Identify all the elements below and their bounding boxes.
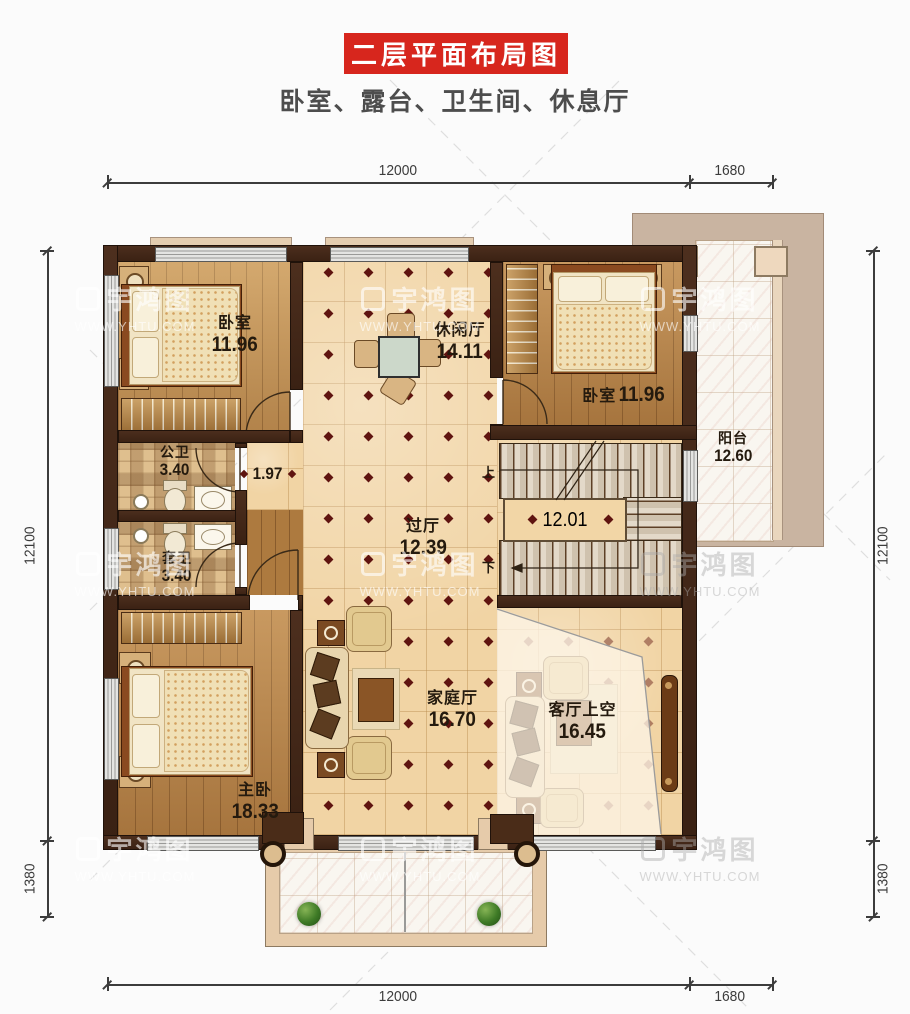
stair-down-label: 下 bbox=[482, 557, 495, 576]
pillow bbox=[605, 276, 649, 302]
blanket bbox=[556, 304, 652, 370]
dim-bottom-1680: 1680 bbox=[690, 988, 770, 1005]
sliding-door bbox=[338, 836, 474, 851]
bathroom-sink bbox=[194, 524, 232, 550]
dim-top-12000: 12000 bbox=[358, 162, 438, 179]
wall-bedroom2-bottom bbox=[490, 425, 697, 440]
balcony-floor bbox=[695, 240, 774, 542]
wall-lamp bbox=[133, 528, 149, 544]
stair-flight-upper bbox=[499, 443, 682, 499]
sofa-cushion bbox=[313, 680, 341, 708]
wardrobe bbox=[121, 612, 242, 644]
label-bedroom-top-left: 卧室 11.96 bbox=[190, 315, 280, 358]
wall-bedroom1-bottom bbox=[118, 430, 290, 443]
wall-master-top-b bbox=[298, 595, 303, 610]
balcony-pilaster-right bbox=[754, 246, 788, 277]
coffee-table bbox=[358, 678, 394, 722]
dim-bottom-12000: 12000 bbox=[358, 988, 438, 1005]
page-subtitle: 卧室、露台、卫生间、休息厅 bbox=[0, 82, 910, 118]
stairwell-area: 12.01 bbox=[542, 509, 587, 532]
label-living-void: 客厅上空 16.45 bbox=[525, 702, 640, 745]
dim-line-bottom bbox=[107, 984, 772, 986]
pillow bbox=[132, 291, 159, 332]
dim-left-1380: 1380 bbox=[22, 839, 39, 919]
label-bedroom-top-right: 卧室11.96 bbox=[560, 383, 690, 407]
label-hallway: 过厅 12.39 bbox=[378, 518, 468, 561]
window bbox=[330, 247, 469, 262]
terrace-divider bbox=[404, 852, 406, 932]
wardrobe bbox=[121, 398, 241, 433]
side-table bbox=[317, 752, 345, 778]
window bbox=[683, 315, 698, 352]
column-base bbox=[514, 841, 540, 867]
stair-up-label: 上 bbox=[482, 462, 495, 481]
floor-plan-page: 二层平面布局图 卧室、露台、卫生间、休息厅 bbox=[0, 0, 910, 1014]
balcony-railing bbox=[772, 240, 783, 540]
label-ensuite-bath: 套卫 3.40 bbox=[142, 550, 212, 586]
stair-flight-lower bbox=[499, 540, 682, 597]
stairwell-area-box: 12.01 bbox=[503, 498, 627, 542]
label-public-bath: 公卫 3.40 bbox=[140, 444, 210, 480]
window bbox=[104, 678, 119, 780]
watermark-logo-icon bbox=[76, 552, 100, 576]
label-corridor-width: 1.97 bbox=[228, 464, 308, 484]
dim-top-1680: 1680 bbox=[690, 162, 770, 179]
armchair bbox=[346, 606, 392, 652]
dim-line-left bbox=[47, 250, 49, 916]
label-family-hall: 家庭厅 16.70 bbox=[405, 690, 500, 733]
label-leisure-hall: 休闲厅 14.11 bbox=[410, 322, 510, 365]
watermark-logo-icon bbox=[76, 837, 100, 861]
dim-right-12100: 12100 bbox=[875, 506, 892, 586]
window bbox=[104, 275, 119, 387]
door-panel bbox=[490, 814, 534, 844]
window bbox=[530, 836, 656, 851]
wall-master-top-a bbox=[118, 595, 250, 610]
wardrobe bbox=[506, 264, 538, 374]
corridor-floor-wood bbox=[247, 510, 303, 595]
dim-right-1380: 1380 bbox=[875, 839, 892, 919]
watermark-logo-icon bbox=[76, 287, 100, 311]
pillow bbox=[132, 674, 160, 718]
page-title: 二层平面布局图 bbox=[351, 35, 561, 72]
blanket bbox=[164, 670, 249, 772]
wall-stair-bottom bbox=[497, 595, 682, 608]
stair-landing-steps bbox=[623, 497, 682, 542]
title-banner: 二层平面布局图 bbox=[344, 33, 568, 74]
armchair bbox=[346, 736, 392, 780]
side-table bbox=[317, 620, 345, 646]
pillow bbox=[132, 337, 159, 378]
window bbox=[155, 247, 287, 262]
wall-stub bbox=[290, 430, 303, 443]
label-balcony: 阳台 12.60 bbox=[696, 430, 770, 466]
chair bbox=[354, 340, 379, 368]
dim-line-top bbox=[107, 182, 772, 184]
window bbox=[104, 528, 119, 590]
pillow bbox=[132, 724, 160, 768]
tall-window bbox=[661, 675, 678, 792]
wall-bath-right-b bbox=[235, 490, 247, 545]
wall-bedroom1-right bbox=[290, 262, 303, 390]
column-base bbox=[260, 841, 286, 867]
label-master-bedroom: 主卧 18.33 bbox=[210, 782, 300, 825]
window bbox=[147, 836, 259, 851]
wall-lamp bbox=[133, 494, 149, 510]
pillow bbox=[558, 276, 602, 302]
dim-left-12100: 12100 bbox=[22, 506, 39, 586]
wall-bath-right-c bbox=[235, 587, 247, 595]
potted-plant bbox=[297, 902, 321, 926]
wall-bath-partition bbox=[118, 510, 247, 522]
wall-bath-right-a bbox=[235, 443, 247, 448]
potted-plant bbox=[477, 902, 501, 926]
